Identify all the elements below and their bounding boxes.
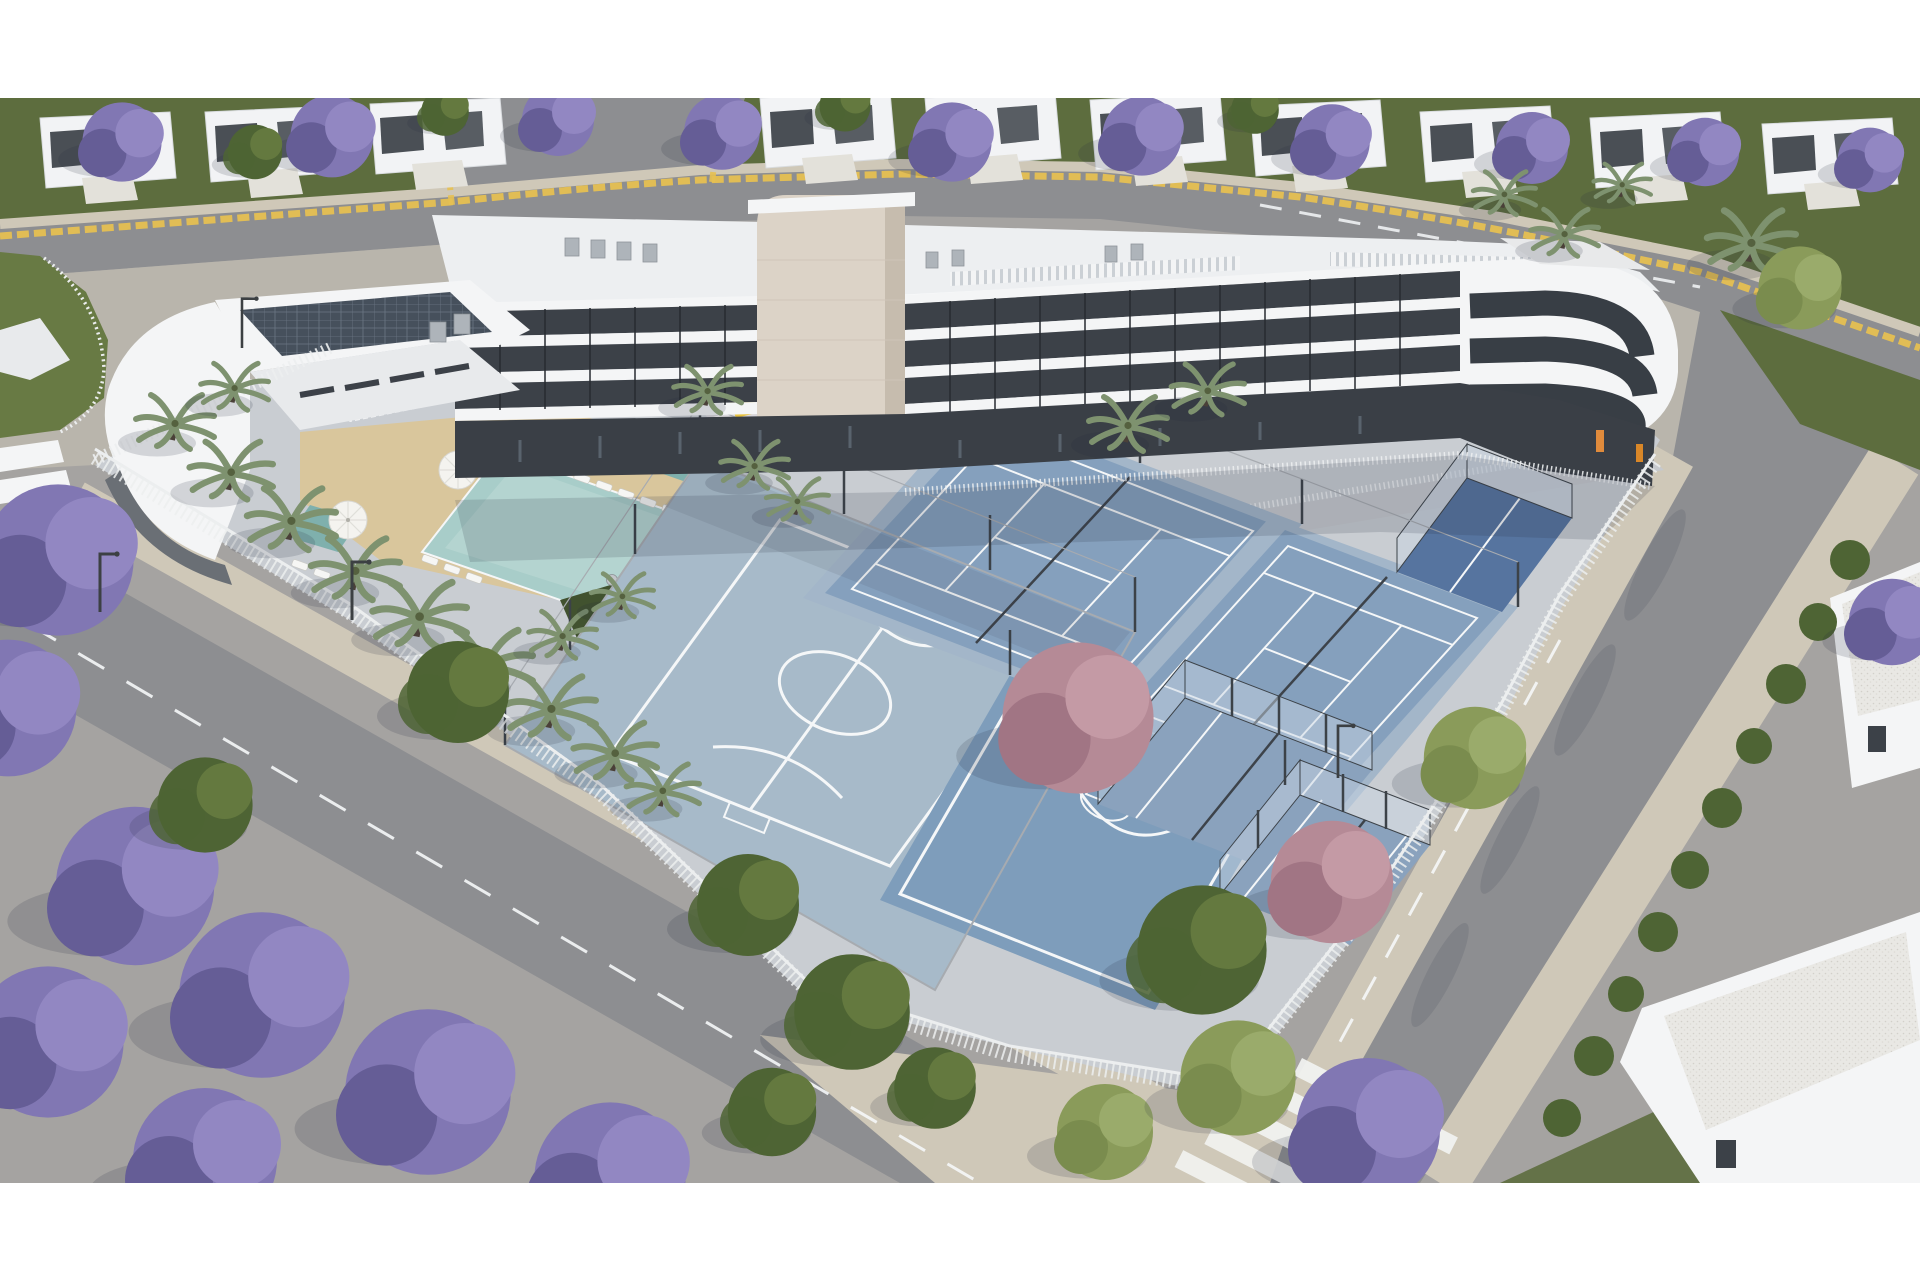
letterbox-bottom — [0, 1183, 1920, 1280]
render-canvas — [0, 0, 1920, 1280]
aerial-render — [0, 0, 1920, 1280]
shop-sign-2 — [1636, 444, 1643, 462]
shop-sign — [1596, 430, 1604, 452]
letterbox-top — [0, 0, 1920, 98]
